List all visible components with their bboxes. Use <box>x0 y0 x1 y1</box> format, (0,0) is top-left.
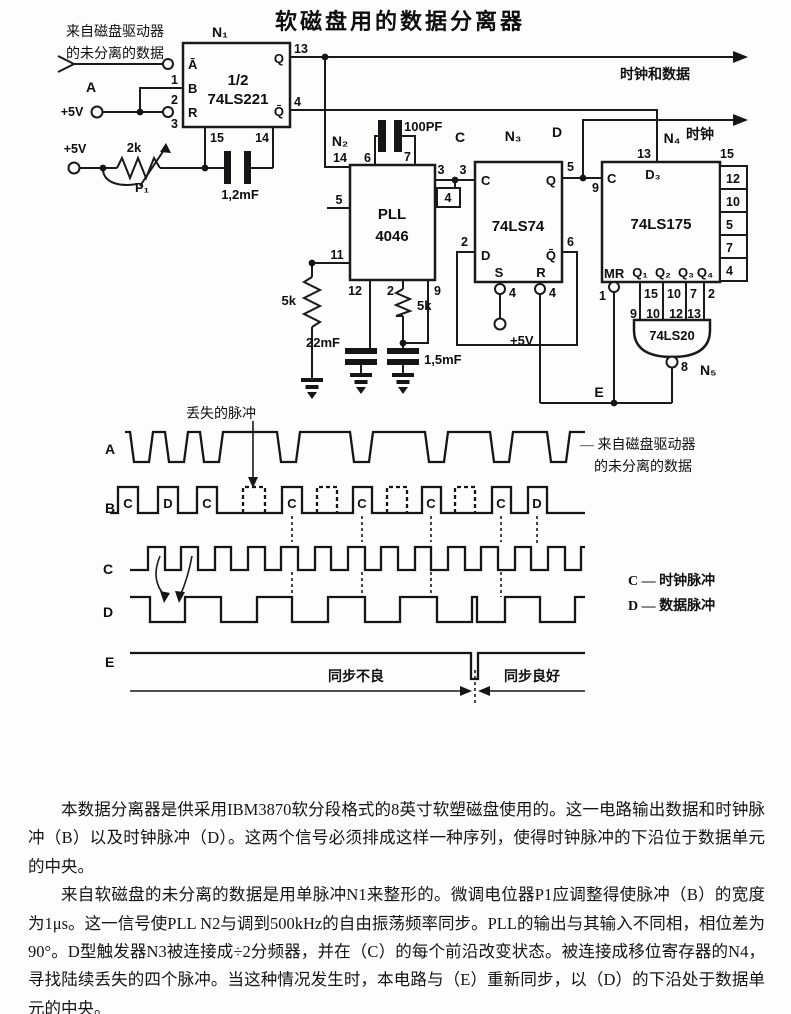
n3-num-r: 4 <box>549 286 556 300</box>
n4-numq2: 10 <box>667 287 681 301</box>
n3-name: N₃ <box>505 128 522 144</box>
resistor-5k-right <box>396 289 410 316</box>
wave-b-letters: C D C C C C C D <box>123 496 541 511</box>
n3-chip: 74LS74 <box>492 218 545 235</box>
n3-pin-c: C <box>481 173 491 188</box>
n4-pin-c: C <box>607 171 617 186</box>
node-c-label: C <box>455 129 465 145</box>
wave-d-trace <box>130 597 585 622</box>
n4-num9: 9 <box>592 181 599 195</box>
n3-num-s: 4 <box>509 286 516 300</box>
wave-a-note-line1: — 来自磁盘驱动器 <box>579 436 696 453</box>
n4-q2: Q₂ <box>655 265 671 280</box>
wave-a-label: A <box>105 441 115 457</box>
n2-num7: 7 <box>404 150 411 164</box>
ground-icon <box>392 373 414 394</box>
cap-22mf-label: 22mF <box>306 335 340 350</box>
n1-num3: 3 <box>171 117 178 131</box>
source-note-line1: 来自磁盘驱动器 <box>66 23 164 40</box>
n1-pin-r: R <box>188 105 198 120</box>
n4-pin-d3: D₃ <box>645 167 660 182</box>
n2-num2: 2 <box>387 284 394 298</box>
b-letter: D <box>163 496 172 511</box>
junction-dot <box>202 165 209 172</box>
node-a-label: A <box>86 79 96 95</box>
n5-in2: 10 <box>646 307 660 321</box>
b-letter: C <box>357 496 367 511</box>
junction-dot <box>322 54 329 61</box>
n1-name: N₁ <box>212 24 228 40</box>
sync-annotation: 同步不良 同步良好 <box>130 668 585 706</box>
b-letter: C <box>123 496 133 511</box>
sync-good-label: 同步良好 <box>504 668 560 685</box>
resistor-2k <box>117 158 160 178</box>
dashed-pulse <box>455 487 475 513</box>
out-clock-label: 时钟 <box>686 126 714 143</box>
n4-numq4: 2 <box>708 287 715 301</box>
n4-name: N₄ <box>664 130 681 146</box>
b-letter: C <box>496 496 506 511</box>
b-letter: D <box>532 496 541 511</box>
cap-1-5mf-plate <box>387 359 419 365</box>
cap-1-2mf-plate <box>224 151 231 184</box>
n2-chip2: 4046 <box>375 228 408 245</box>
n2-num14: 14 <box>333 151 347 165</box>
ladder-cell <box>720 235 747 258</box>
source-note-line2: 的未分离的数据 <box>66 45 164 62</box>
n1-pin-abar: Ā <box>188 57 198 72</box>
n5-chip: 74LS20 <box>649 328 695 343</box>
pot-wiper-arrowhead <box>160 143 171 153</box>
junction-dot <box>137 109 144 116</box>
terminal-circle <box>495 319 506 330</box>
description-text: 本数据分离器是供采用IBM3870软分段格式的8英寸软塑磁盘使用的。这一电路输出… <box>28 796 765 1014</box>
paragraph-2: 来自软磁盘的未分离的数据是用单脉冲N1来整形的。微调电位器P1应调整得使脉冲（B… <box>28 881 765 1014</box>
n3-pin-q: Q <box>546 173 556 188</box>
junction-dot <box>309 260 316 267</box>
wave-a-trace <box>125 432 585 462</box>
n1-num13: 13 <box>294 42 308 56</box>
wave-e-label: E <box>105 654 114 670</box>
n3-num6: 6 <box>567 235 574 249</box>
out-clock-data-label: 时钟和数据 <box>620 66 690 83</box>
lost-pulse-label: 丢失的脉冲 <box>186 406 256 422</box>
node-d-label: D <box>552 124 562 140</box>
n1-num4: 4 <box>294 95 301 109</box>
junction-dot <box>100 165 107 172</box>
n4-num13: 13 <box>637 147 651 161</box>
terminal-circle <box>69 163 80 174</box>
n4-q1: Q₁ <box>632 265 648 280</box>
n2-num5: 5 <box>336 193 343 207</box>
n3-num3: 3 <box>460 163 467 177</box>
cap-100pf-plate <box>378 120 386 152</box>
n4-chip: 74LS175 <box>631 216 692 233</box>
cap-100pf-label: 100PF <box>404 119 442 134</box>
dashed-pulse <box>387 487 407 513</box>
n3-pin-d: D <box>481 248 490 263</box>
n5-in4: 13 <box>687 307 701 321</box>
n4-num1: 1 <box>599 289 606 303</box>
n4-q4: Q₄ <box>697 265 713 280</box>
junction-dot <box>452 177 459 184</box>
b-letter: C <box>426 496 436 511</box>
ladder-cell <box>720 212 747 235</box>
wave-a-note-line2: 的未分离的数据 <box>594 458 692 475</box>
n2-num9: 9 <box>434 284 441 298</box>
n3-pin-r: R <box>536 265 546 280</box>
n2-num12: 12 <box>348 284 362 298</box>
n3-num5: 5 <box>567 160 574 174</box>
wave-d-label: D <box>103 604 113 620</box>
curved-arrow <box>156 556 165 596</box>
wave-c-trace <box>130 547 585 570</box>
n3-pin-s: S <box>495 265 504 280</box>
cap-22mf-plate <box>345 359 377 365</box>
b-letter: C <box>202 496 212 511</box>
n1-num1: 1 <box>171 73 178 87</box>
v5-pot-label: +5V <box>64 142 87 156</box>
n1-half: 1/2 <box>228 72 249 89</box>
r5k-right-label: 5k <box>417 298 432 313</box>
cd-legend: C — 时钟脉冲 D — 数据脉冲 <box>628 572 715 614</box>
n2-num6: 6 <box>364 151 371 165</box>
timing-diagram: 丢失的脉冲 A — 来自磁盘驱动器 的未分离的数据 B C D C C C C <box>103 406 715 706</box>
n1-pin-q: Q <box>274 51 284 66</box>
inverter-bubble <box>535 284 545 294</box>
wave-b-trace <box>110 487 585 513</box>
ground-icon <box>350 373 372 394</box>
n4-ladder-12: 12 <box>726 172 740 186</box>
node-e-label: E <box>594 384 603 400</box>
arrowhead-clock <box>733 114 748 126</box>
n1-num2: 2 <box>171 93 178 107</box>
legend-c: C — 时钟脉冲 <box>628 572 715 589</box>
resistor-5k-left <box>304 277 320 327</box>
wave-c-label: C <box>103 561 113 577</box>
pot-name: P₁ <box>135 180 149 195</box>
dashed-pulse <box>317 487 337 513</box>
ground-icon <box>301 378 323 399</box>
n3-pin-qbar: Q̄ <box>546 248 556 263</box>
inverter-bubble <box>163 59 173 69</box>
arrowhead-clock-data <box>733 51 748 63</box>
n4-pin-mr: MR <box>604 266 625 281</box>
cap-22mf-plate <box>345 348 377 354</box>
n5-name: N₅ <box>700 362 717 378</box>
curved-arrowhead <box>175 591 185 603</box>
n4-num15-top: 15 <box>720 147 734 161</box>
n4-numq3: 7 <box>690 287 697 301</box>
n1-num14: 14 <box>255 131 269 145</box>
terminal-circle <box>92 107 103 118</box>
junction-dot <box>611 400 618 407</box>
inverter-bubble <box>667 357 678 368</box>
n2-num4: 4 <box>445 191 452 205</box>
n4-ladder-5: 5 <box>726 218 733 232</box>
n1-pin-b: B <box>188 81 197 96</box>
ground-symbols <box>301 373 414 399</box>
paragraph-1: 本数据分离器是供采用IBM3870软分段格式的8英寸软塑磁盘使用的。这一电路输出… <box>28 796 765 881</box>
dashed-pulse <box>243 487 265 513</box>
n4-ladder-10: 10 <box>726 195 740 209</box>
cap-12mf-label: 1,2mF <box>221 187 259 202</box>
n5-num8: 8 <box>681 360 688 374</box>
n4-q3: Q₃ <box>678 265 694 280</box>
n1-chip: 74LS221 <box>208 91 269 108</box>
inverter-bubble <box>163 107 173 117</box>
v5-n3-label: +5V <box>510 333 534 348</box>
legend-d: D — 数据脉冲 <box>628 597 715 614</box>
n2-name: N₂ <box>332 133 348 149</box>
n1-num15: 15 <box>210 131 224 145</box>
junction-dot <box>580 175 587 182</box>
n4-ladder-7: 7 <box>726 241 733 255</box>
cap-1-2mf-plate <box>244 151 251 184</box>
scanned-page: 软磁盘用的数据分离器 <box>0 0 791 1014</box>
n2-chip1: PLL <box>378 206 406 223</box>
dimension-arrowhead-right <box>460 686 472 696</box>
cap-100pf-plate <box>394 120 402 152</box>
n2-num3: 3 <box>438 163 445 177</box>
pot-value: 2k <box>127 140 142 155</box>
b-letter: C <box>287 496 297 511</box>
cap-1-5mf-plate <box>387 348 419 354</box>
curved-arrowhead <box>160 591 170 603</box>
inverter-bubble <box>495 284 505 294</box>
n4-numq1: 15 <box>644 287 658 301</box>
cap-15mf-label: 1,5mF <box>424 352 462 367</box>
r5k-left-label: 5k <box>282 293 297 308</box>
n2-num11: 11 <box>330 248 343 262</box>
dimension-arrowhead-left <box>478 686 490 696</box>
n5-in3: 12 <box>669 307 683 321</box>
ladder-cell <box>720 258 747 281</box>
v5-input-label: +5V <box>61 105 84 119</box>
junction-dot <box>400 340 407 347</box>
n1-pin-qbar: Q̄ <box>274 104 284 119</box>
n5-in1: 9 <box>630 307 637 321</box>
inverter-bubble <box>609 282 619 292</box>
n4-ladder-4: 4 <box>726 264 733 278</box>
n3-num2: 2 <box>461 235 468 249</box>
sync-bad-label: 同步不良 <box>328 668 384 685</box>
